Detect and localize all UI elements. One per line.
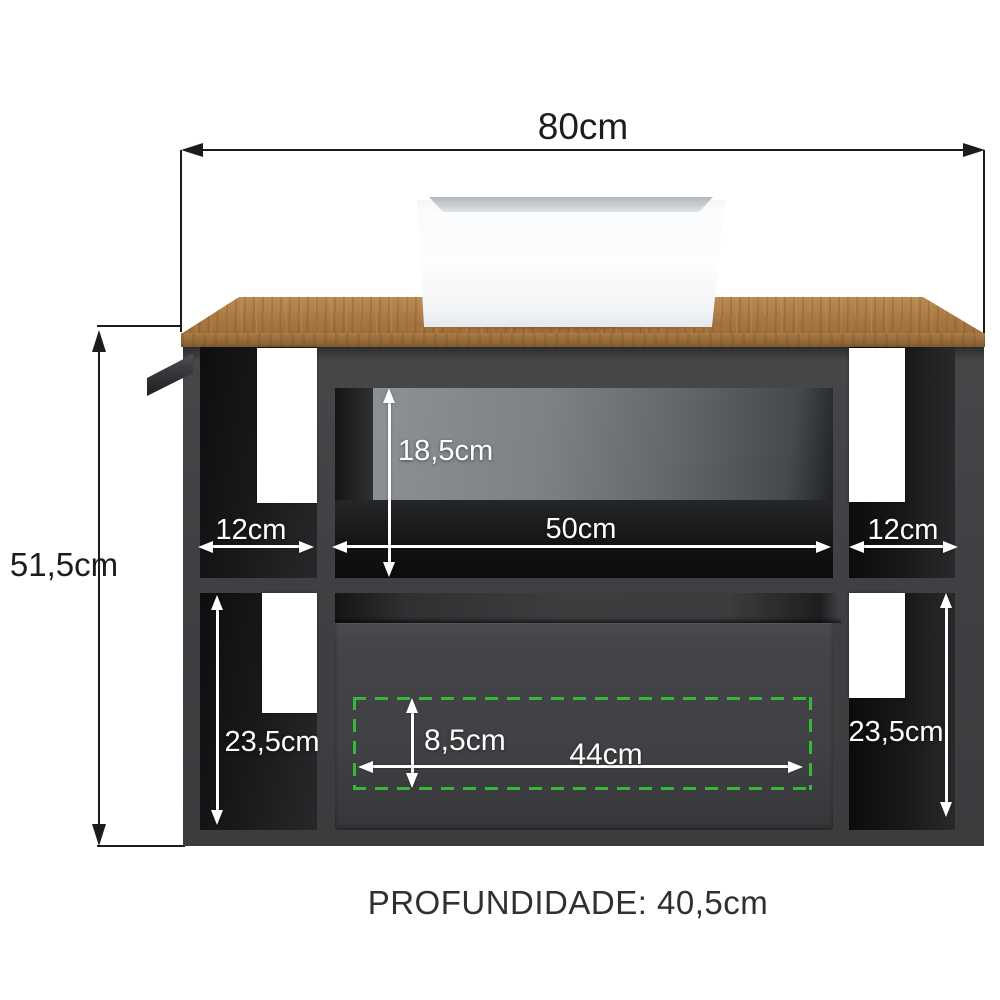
countertop-front-edge <box>181 333 985 347</box>
width-dimension-line <box>202 149 964 151</box>
left-lower-height-line <box>216 608 219 812</box>
arrow-up-icon <box>92 330 106 352</box>
extension-line-right <box>983 150 985 336</box>
lower-right-opening <box>849 593 905 698</box>
extension-line-left <box>180 150 182 332</box>
arrow-up-icon <box>940 593 952 608</box>
drawer-pull-recess <box>335 593 841 623</box>
arrow-up-icon <box>211 595 223 610</box>
upper-right-opening <box>849 348 905 502</box>
arrow-left-icon <box>332 541 347 553</box>
clearance-dash-right <box>809 697 812 790</box>
arrow-up-icon <box>383 388 395 403</box>
clearance-dash-left <box>353 697 356 790</box>
clearance-dash-top <box>353 697 812 700</box>
height-dimension-line <box>98 350 100 826</box>
arrow-up-icon <box>406 698 418 713</box>
depth-note: PROFUNDIDADE: 40,5cm <box>358 884 778 922</box>
left-lower-height-label: 23,5cm <box>220 726 324 759</box>
arrow-left-icon <box>181 143 203 157</box>
arrow-right-icon <box>788 761 803 773</box>
right-lower-height-label: 23,5cm <box>844 716 948 749</box>
vessel-basin <box>415 193 727 327</box>
right-shelf-width-label: 12cm <box>852 514 954 547</box>
drawer-front[interactable] <box>335 623 833 830</box>
niche-height-label: 18,5cm <box>398 435 493 468</box>
product-dimension-diagram: 80cm 51,5cm <box>0 0 1000 1000</box>
lower-left-opening <box>262 593 317 713</box>
basin-rim <box>429 197 713 212</box>
left-shelf-width-label: 12cm <box>200 514 302 547</box>
right-lower-height-line <box>945 606 948 804</box>
overall-height-label: 51,5cm <box>8 546 120 584</box>
arrow-right-icon <box>816 541 831 553</box>
clearance-dash-bottom <box>353 787 812 790</box>
arrow-right-icon <box>963 143 985 157</box>
arrow-down-icon <box>211 810 223 825</box>
niche-width-label: 50cm <box>520 513 642 546</box>
arrow-down-icon <box>940 802 952 817</box>
clearance-width-label: 44cm <box>546 738 666 772</box>
tick-top <box>97 325 181 327</box>
arrow-left-icon <box>358 761 373 773</box>
niche-height-line <box>388 401 391 564</box>
arrow-down-icon <box>92 824 106 846</box>
arrow-down-icon <box>383 562 395 577</box>
tick-bottom <box>97 845 185 847</box>
arrow-down-icon <box>406 773 418 788</box>
upper-left-opening <box>257 348 317 503</box>
overall-width-label: 80cm <box>503 106 663 148</box>
clearance-height-label: 8,5cm <box>424 724 506 758</box>
